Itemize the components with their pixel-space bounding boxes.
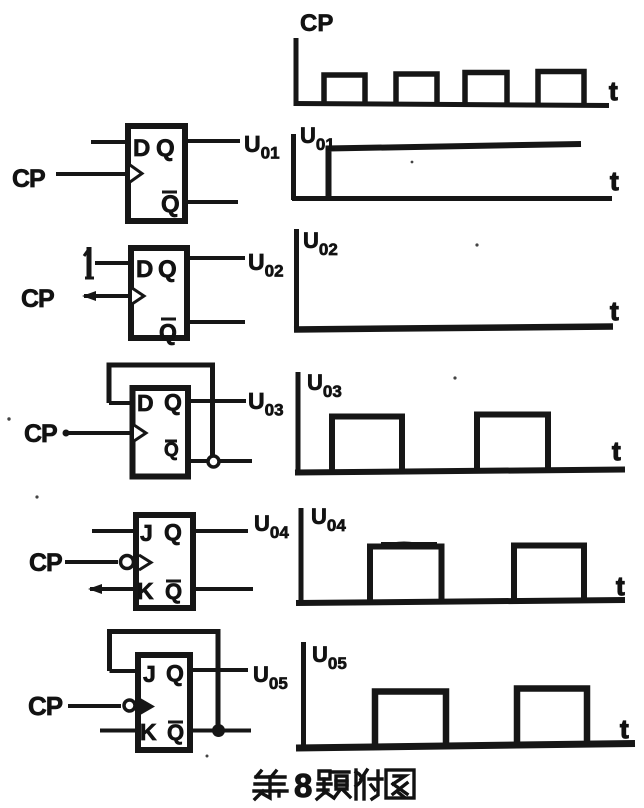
svg-text:U04: U04	[311, 504, 346, 535]
svg-text:CP: CP	[28, 691, 63, 721]
svg-text:Q: Q	[166, 660, 184, 686]
svg-text:U03: U03	[248, 388, 284, 420]
svg-text:D: D	[133, 135, 150, 162]
svg-text:K: K	[137, 578, 154, 604]
svg-text:Q: Q	[167, 720, 184, 745]
svg-text:8: 8	[294, 767, 312, 804]
svg-text:CP: CP	[300, 10, 333, 37]
svg-text:U05: U05	[253, 662, 288, 693]
svg-text:t: t	[610, 296, 619, 326]
svg-text:Q: Q	[161, 191, 180, 218]
svg-text:U02: U02	[303, 228, 338, 259]
svg-text:CP: CP	[24, 420, 57, 448]
svg-text:Q: Q	[158, 256, 177, 283]
svg-text:CP: CP	[29, 549, 62, 577]
svg-text:U02: U02	[248, 249, 284, 281]
svg-text:Q: Q	[156, 135, 175, 162]
svg-text:Q: Q	[164, 389, 182, 415]
svg-text:D: D	[136, 256, 153, 283]
svg-text:t: t	[616, 571, 625, 601]
svg-text:t: t	[609, 76, 618, 106]
svg-text:Q: Q	[165, 579, 182, 604]
svg-text:Q: Q	[164, 519, 182, 545]
svg-text:U01: U01	[244, 131, 280, 163]
svg-text:t: t	[610, 166, 619, 196]
svg-text:CP: CP	[12, 165, 45, 193]
svg-text:U04: U04	[254, 511, 289, 542]
svg-text:J: J	[140, 520, 153, 546]
svg-text:D: D	[137, 390, 154, 416]
svg-text:U01: U01	[300, 123, 335, 154]
svg-text:t: t	[612, 436, 621, 466]
svg-text:t: t	[620, 714, 629, 744]
svg-text:K: K	[140, 719, 157, 745]
svg-text:Q: Q	[164, 440, 179, 461]
svg-text:U05: U05	[312, 642, 347, 673]
svg-text:J: J	[143, 661, 156, 687]
svg-text:CP: CP	[21, 285, 54, 313]
svg-text:Q: Q	[159, 319, 177, 345]
svg-text:U03: U03	[307, 370, 342, 401]
